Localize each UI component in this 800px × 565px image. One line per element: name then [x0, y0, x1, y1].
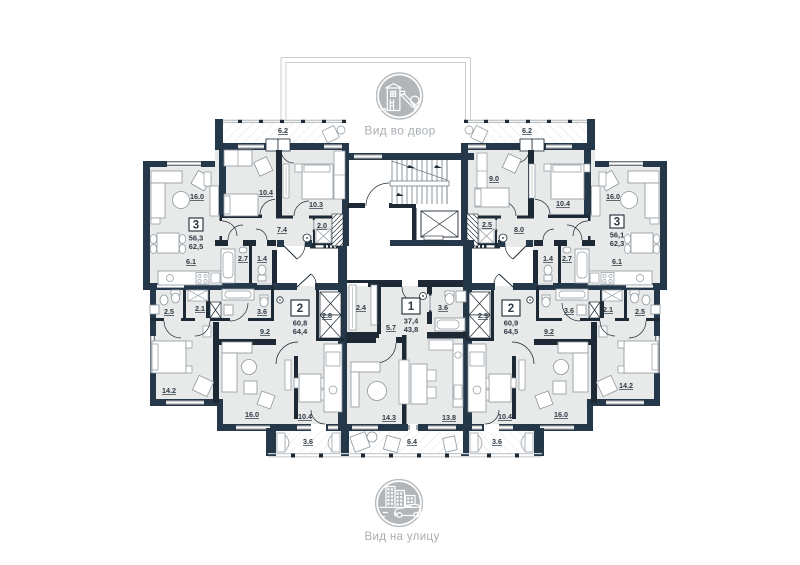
svg-text:62,3: 62,3 — [610, 239, 624, 248]
svg-text:2.7: 2.7 — [238, 254, 248, 263]
svg-text:2.9: 2.9 — [478, 311, 488, 320]
svg-text:8.0: 8.0 — [514, 225, 524, 234]
svg-text:64,5: 64,5 — [504, 327, 518, 336]
svg-text:64,4: 64,4 — [293, 327, 308, 336]
svg-text:3.6: 3.6 — [492, 437, 502, 446]
svg-text:56,3: 56,3 — [189, 234, 203, 243]
svg-text:1.4: 1.4 — [257, 254, 267, 263]
svg-text:16.0: 16.0 — [245, 410, 259, 419]
svg-text:2.1: 2.1 — [195, 304, 205, 313]
svg-text:43,8: 43,8 — [404, 325, 418, 334]
svg-text:2.4: 2.4 — [356, 303, 366, 312]
svg-text:2.5: 2.5 — [164, 307, 174, 316]
svg-text:3.6: 3.6 — [564, 306, 574, 315]
svg-text:2.0: 2.0 — [317, 221, 327, 230]
svg-text:9.0: 9.0 — [489, 174, 499, 183]
svg-text:10.4: 10.4 — [298, 412, 312, 421]
svg-text:3: 3 — [193, 220, 199, 232]
svg-text:2.8: 2.8 — [322, 311, 332, 320]
svg-text:6.4: 6.4 — [407, 437, 417, 446]
svg-text:2.1: 2.1 — [603, 305, 613, 314]
svg-text:Вид на улицу: Вид на улицу — [364, 530, 439, 543]
svg-text:5.7: 5.7 — [386, 323, 396, 332]
svg-text:3.6: 3.6 — [438, 303, 448, 312]
svg-text:10.3: 10.3 — [309, 200, 323, 209]
svg-text:6.2: 6.2 — [278, 126, 288, 135]
svg-text:56,1: 56,1 — [610, 231, 624, 240]
svg-text:9.2: 9.2 — [544, 327, 554, 336]
svg-text:10.4: 10.4 — [498, 412, 512, 421]
svg-text:2.5: 2.5 — [635, 307, 645, 316]
svg-text:3.6: 3.6 — [257, 307, 267, 316]
svg-text:2.5: 2.5 — [482, 220, 492, 229]
svg-text:16.0: 16.0 — [606, 192, 620, 201]
svg-text:1.4: 1.4 — [543, 254, 553, 263]
svg-text:2: 2 — [297, 303, 303, 315]
svg-text:3: 3 — [614, 217, 620, 229]
svg-text:2.7: 2.7 — [562, 254, 572, 263]
svg-text:16.0: 16.0 — [554, 410, 568, 419]
svg-text:10.4: 10.4 — [556, 199, 570, 208]
svg-text:37,4: 37,4 — [404, 317, 419, 326]
svg-text:Вид во двор: Вид во двор — [364, 124, 435, 138]
svg-text:14.3: 14.3 — [382, 413, 396, 422]
svg-text:1: 1 — [408, 301, 415, 313]
svg-text:6.2: 6.2 — [522, 126, 532, 135]
svg-text:10.4: 10.4 — [259, 188, 273, 197]
svg-text:62,5: 62,5 — [189, 242, 203, 251]
svg-text:6.1: 6.1 — [186, 257, 196, 266]
svg-text:7.4: 7.4 — [277, 225, 287, 234]
svg-text:3.6: 3.6 — [303, 437, 313, 446]
svg-text:14.2: 14.2 — [619, 381, 633, 390]
svg-text:6.1: 6.1 — [612, 257, 622, 266]
svg-text:13.8: 13.8 — [442, 413, 456, 422]
svg-text:16.0: 16.0 — [190, 192, 204, 201]
svg-text:60,9: 60,9 — [504, 319, 518, 328]
svg-text:2: 2 — [508, 303, 514, 315]
svg-text:60,8: 60,8 — [293, 319, 307, 328]
svg-text:9.2: 9.2 — [260, 327, 270, 336]
svg-text:14.2: 14.2 — [162, 386, 176, 395]
